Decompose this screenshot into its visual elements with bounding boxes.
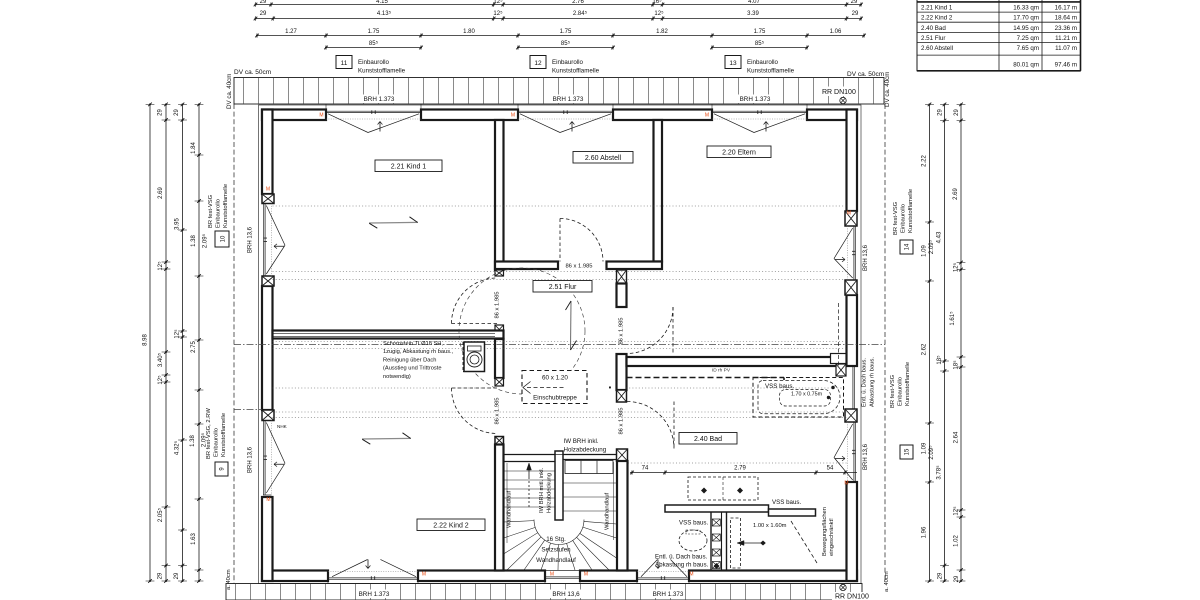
svg-text:4.13⁵: 4.13⁵ [377,10,392,17]
svg-text:BRH 13,6: BRH 13,6 [863,443,869,470]
svg-text:Einbaurollo: Einbaurollo [901,204,907,233]
svg-text:2.21 Kind 1: 2.21 Kind 1 [391,164,427,171]
svg-text:1.82: 1.82 [656,29,668,35]
svg-text:1.02: 1.02 [954,535,960,547]
svg-text:2.79: 2.79 [734,466,746,472]
svg-text:18⁵: 18⁵ [953,360,960,370]
svg-text:2.40 Bad: 2.40 Bad [921,25,946,32]
svg-text:BRH 13,6: BRH 13,6 [248,226,254,253]
svg-text:ID rh PV: ID rh PV [712,368,731,374]
svg-text:86 x 1.985: 86 x 1.985 [495,291,501,318]
svg-text:Kunststofflamelle: Kunststofflamelle [221,413,227,457]
svg-text:1.38: 1.38 [191,235,197,247]
svg-text:2.22: 2.22 [922,155,928,167]
svg-text:12: 12 [534,60,542,67]
svg-text:DV ca. 40cm: DV ca. 40cm [226,74,233,109]
svg-text:M: M [511,113,515,119]
svg-text:1zugig, Abkastung rh baus.,: 1zugig, Abkastung rh baus., [383,349,454,355]
svg-text:Entl. ü. Dach baus.: Entl. ü. Dach baus. [655,554,708,561]
svg-text:80.01 qm: 80.01 qm [1013,62,1039,69]
svg-text:Wandhandlauf: Wandhandlauf [536,557,576,564]
svg-text:1.75: 1.75 [754,29,766,35]
svg-text:1.09: 1.09 [922,442,928,454]
svg-text:M: M [422,572,426,578]
svg-text:29: 29 [260,11,267,17]
svg-text:BR fest-VSG: BR fest-VSG [893,201,899,235]
svg-text:Wandhandlauf: Wandhandlauf [605,492,611,530]
svg-text:86 x 1.985: 86 x 1.985 [619,317,625,344]
svg-text:Reinigung über Dach: Reinigung über Dach [383,357,436,363]
svg-text:Holzabdeckung: Holzabdeckung [547,473,553,513]
svg-text:7.25 qm: 7.25 qm [1017,35,1039,42]
svg-text:16 Stg.: 16 Stg. [546,536,566,543]
svg-text:Kunststofflamelle: Kunststofflamelle [358,68,406,75]
svg-text:2.64: 2.64 [954,431,960,443]
svg-text:12⁵: 12⁵ [157,375,164,385]
svg-text:Kunststofflamelle: Kunststofflamelle [908,189,914,233]
svg-text:54: 54 [827,466,834,472]
svg-text:Setzstufen: Setzstufen [541,547,571,554]
svg-text:Wandhandlauf: Wandhandlauf [507,490,513,528]
svg-text:2.22 Kind 2: 2.22 Kind 2 [921,15,953,22]
svg-text:12⁵: 12⁵ [157,261,164,271]
svg-text:M: M [266,497,270,503]
svg-text:Kunststofflamelle: Kunststofflamelle [223,184,229,228]
svg-text:12⁵: 12⁵ [953,262,960,272]
svg-text:85⁵: 85⁵ [369,40,379,47]
svg-text:BRH 1.373: BRH 1.373 [359,591,390,598]
svg-text:60 x 1.20: 60 x 1.20 [542,375,568,382]
svg-text:RR DN100: RR DN100 [822,89,856,96]
svg-text:RR DN100: RR DN100 [835,594,869,600]
svg-text:8.98: 8.98 [143,334,149,346]
svg-text:VSS baus.: VSS baus. [765,383,795,390]
svg-text:1.06: 1.06 [830,29,842,35]
svg-text:1.84: 1.84 [191,142,197,154]
svg-text:29: 29 [954,575,960,582]
svg-text:23.36 m: 23.36 m [1055,25,1077,32]
svg-text:Abkastung rh baus.: Abkastung rh baus. [655,562,709,569]
svg-text:Einbaurollo: Einbaurollo [747,59,779,66]
svg-text:BRH 1.373: BRH 1.373 [653,591,684,598]
svg-text:1.63: 1.63 [191,533,197,545]
svg-text:M: M [550,572,554,578]
svg-text:14.95 qm: 14.95 qm [1013,25,1039,32]
svg-text:2.20 Eltern: 2.20 Eltern [722,150,756,157]
svg-text:2.09⁵: 2.09⁵ [928,445,935,460]
svg-text:(Ausstieg und Trittroste: (Ausstieg und Trittroste [383,366,441,372]
svg-text:DV ca. 50cm: DV ca. 50cm [234,69,271,76]
svg-text:11.07 m: 11.07 m [1055,45,1077,52]
svg-text:86 x 1.985: 86 x 1.985 [565,264,592,270]
svg-text:17.70 qm: 17.70 qm [1013,15,1039,22]
svg-text:M: M [584,572,588,578]
svg-text:DV ca. 40cm: DV ca. 40cm [884,72,891,107]
svg-text:29: 29 [938,572,944,579]
svg-text:12⁵: 12⁵ [654,10,664,17]
svg-text:12⁵: 12⁵ [953,506,960,516]
svg-text:a. 40cm: a. 40cm [884,571,890,592]
svg-text:13: 13 [729,60,737,67]
svg-text:1.70 x 0.75m: 1.70 x 0.75m [791,392,823,398]
svg-text:BRH 13,6: BRH 13,6 [552,591,580,598]
svg-text:12⁵: 12⁵ [493,10,503,17]
svg-text:74: 74 [642,466,649,472]
svg-text:BRH 1.373: BRH 1.373 [553,96,584,103]
svg-text:M: M [844,481,848,487]
svg-text:4.43: 4.43 [937,231,943,243]
svg-text:notwendig): notwendig) [383,374,411,380]
svg-text:Abkastung rh baus.: Abkastung rh baus. [870,357,876,407]
svg-text:Einbaurollo: Einbaurollo [552,59,584,66]
svg-text:2.21 Kind 1: 2.21 Kind 1 [921,5,953,12]
svg-text:Einbaurollo: Einbaurollo [214,428,220,457]
svg-text:M: M [705,113,709,119]
svg-text:VSS baus.: VSS baus. [772,499,802,506]
svg-text:85⁵: 85⁵ [755,40,765,47]
svg-text:2.51 Flur: 2.51 Flur [549,284,577,291]
svg-text:BRH 1.373: BRH 1.373 [364,96,395,103]
svg-text:3.40⁵: 3.40⁵ [157,352,164,367]
svg-text:29: 29 [852,11,859,17]
svg-text:2.09⁵: 2.09⁵ [928,239,935,254]
svg-text:29: 29 [158,572,164,579]
svg-text:IW BRH inkl.: IW BRH inkl. [564,438,599,445]
svg-text:2.76: 2.76 [572,0,584,5]
svg-text:29: 29 [174,572,180,579]
svg-text:2.40 Bad: 2.40 Bad [694,436,722,443]
svg-text:2.84⁵: 2.84⁵ [573,10,588,17]
svg-text:Einbaurollo: Einbaurollo [898,377,904,406]
svg-text:7.65 qm: 7.65 qm [1017,45,1039,52]
svg-text:86 x 1.985: 86 x 1.985 [495,397,501,424]
svg-text:M: M [266,187,270,193]
svg-text:16⁵: 16⁵ [652,0,662,5]
svg-text:12⁵: 12⁵ [174,329,181,339]
svg-text:3.95: 3.95 [175,218,181,230]
svg-text:1.27: 1.27 [285,29,297,35]
svg-text:M: M [319,113,323,119]
svg-text:12⁵: 12⁵ [493,0,503,5]
svg-text:4.07: 4.07 [748,0,760,5]
svg-text:IW BRH mitl. inkl.: IW BRH mitl. inkl. [539,468,545,513]
svg-text:16.17 m: 16.17 m [1055,5,1077,12]
svg-text:2.22 Kind 2: 2.22 Kind 2 [433,523,469,530]
svg-text:10: 10 [221,235,227,242]
svg-text:1.75: 1.75 [560,29,572,35]
svg-text:15: 15 [905,448,911,455]
svg-text:29: 29 [174,109,180,116]
svg-text:2.05⁵: 2.05⁵ [157,507,164,522]
svg-text:Einbaurollo: Einbaurollo [358,59,390,66]
svg-text:Entl. ü. Dach baus.: Entl. ü. Dach baus. [862,358,868,407]
svg-text:14: 14 [905,243,911,250]
svg-text:29: 29 [954,109,960,116]
svg-text:1.96: 1.96 [922,526,928,538]
svg-text:2.75: 2.75 [191,341,197,353]
svg-text:11: 11 [341,60,348,67]
svg-text:M: M [847,211,851,217]
svg-text:16.33 qm: 16.33 qm [1013,5,1039,12]
svg-text:Schornstein TLØ18 SH,: Schornstein TLØ18 SH, [383,341,443,347]
svg-text:2.51 Flur: 2.51 Flur [921,35,945,42]
svg-text:DV ca. 50cm: DV ca. 50cm [847,71,884,78]
svg-text:2.69: 2.69 [953,188,959,200]
svg-text:eingeschränkt!: eingeschränkt! [829,518,835,556]
svg-text:a. 40cm: a. 40cm [226,569,232,590]
svg-text:Bewegungsflächen: Bewegungsflächen [822,507,828,556]
svg-text:Einbaurollo: Einbaurollo [216,199,222,228]
svg-text:85⁵: 85⁵ [561,40,571,47]
svg-text:1.00 x 1.60m: 1.00 x 1.60m [753,523,787,529]
svg-text:3.39: 3.39 [747,11,759,17]
svg-text:BR fest-VSG: BR fest-VSG [890,374,896,408]
svg-text:Einschubtreppe: Einschubtreppe [533,395,577,402]
svg-text:Kunststofflamelle: Kunststofflamelle [747,68,795,75]
svg-text:BRH 1.373: BRH 1.373 [740,96,771,103]
svg-text:3.78⁵: 3.78⁵ [936,465,943,480]
svg-text:2.62: 2.62 [922,343,928,355]
svg-text:11.21 m: 11.21 m [1055,35,1077,42]
svg-text:18.64 m: 18.64 m [1055,15,1077,22]
svg-text:NHK: NHK [277,424,288,429]
svg-text:M: M [689,572,693,578]
svg-text:1.38: 1.38 [190,435,196,447]
svg-text:Kunststofflamelle: Kunststofflamelle [552,68,600,75]
svg-text:29: 29 [851,0,858,5]
svg-text:2.69: 2.69 [158,187,164,199]
svg-text:2.09⁵: 2.09⁵ [202,233,209,248]
svg-text:86 x 1.985: 86 x 1.985 [619,407,625,434]
svg-text:2.60 Abstell: 2.60 Abstell [921,45,953,52]
svg-text:4.15: 4.15 [376,0,388,5]
svg-text:29: 29 [158,109,164,116]
svg-text:1.09: 1.09 [922,245,928,257]
svg-text:18⁵: 18⁵ [936,355,943,365]
svg-text:Holzabdeckung: Holzabdeckung [564,447,607,454]
svg-text:4.32⁵: 4.32⁵ [174,440,181,455]
svg-text:29: 29 [260,0,267,5]
svg-text:1.75: 1.75 [368,29,380,35]
svg-text:BRH 13,6: BRH 13,6 [863,244,869,271]
svg-text:VSS baus.: VSS baus. [679,520,709,527]
svg-text:2.60 Abstell: 2.60 Abstell [585,155,622,162]
svg-text:97.46 m: 97.46 m [1055,62,1077,69]
svg-text:29: 29 [938,109,944,116]
svg-text:Kunststofflamelle: Kunststofflamelle [905,362,911,406]
svg-text:1.80: 1.80 [463,29,475,35]
svg-text:BR fest-VSG: BR fest-VSG [208,194,214,228]
svg-text:BRH 13,6: BRH 13,6 [248,446,254,473]
svg-text:BR fest-VSG, 2.RW: BR fest-VSG, 2.RW [206,408,212,459]
svg-text:1.61⁵: 1.61⁵ [949,311,956,326]
